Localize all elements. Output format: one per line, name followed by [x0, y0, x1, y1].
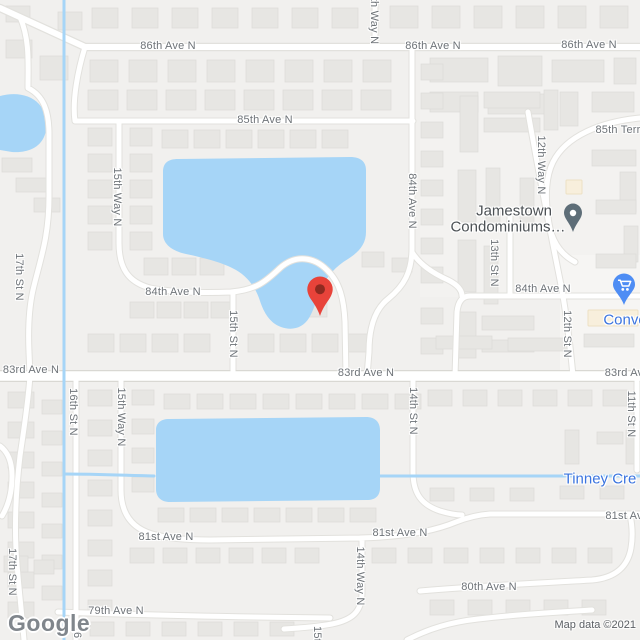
building	[130, 154, 152, 172]
street-label: 14th St N	[407, 387, 419, 435]
building	[163, 548, 187, 563]
building	[197, 394, 223, 409]
street-label: 14th Way N	[354, 546, 366, 605]
building	[560, 486, 584, 499]
street-label: 83rd Av	[605, 367, 640, 379]
building	[132, 390, 154, 405]
building	[42, 586, 62, 600]
building	[460, 96, 478, 152]
building	[42, 524, 62, 538]
building	[263, 394, 289, 409]
shopping-cart-store-pin-icon[interactable]	[610, 273, 638, 306]
street-label: 84th Ave N	[145, 286, 201, 298]
building	[458, 312, 476, 358]
poi-label-jamestown[interactable]: Jamestown	[476, 203, 552, 220]
building	[184, 334, 210, 352]
building	[207, 60, 235, 82]
building	[484, 92, 540, 108]
building	[286, 508, 312, 522]
poi-label-convenience-store[interactable]: Conve	[603, 312, 640, 329]
destination-pin-icon[interactable]	[304, 276, 336, 318]
building	[246, 60, 274, 82]
building	[88, 570, 112, 586]
building	[421, 93, 443, 109]
building	[132, 448, 154, 463]
street-label: 86th Ave N	[561, 39, 617, 51]
building	[408, 548, 432, 563]
building	[324, 60, 352, 82]
building	[614, 58, 636, 84]
building	[458, 240, 476, 292]
building	[596, 254, 636, 268]
building	[285, 60, 313, 82]
building	[329, 394, 355, 409]
street-label: 84th Ave N	[406, 173, 418, 229]
building	[130, 180, 152, 198]
building	[252, 8, 278, 28]
building	[184, 302, 208, 318]
street-label: 81st Av	[605, 510, 640, 522]
building	[421, 122, 443, 138]
building	[596, 200, 636, 214]
google-logo[interactable]: Google	[8, 610, 90, 637]
building	[444, 548, 468, 563]
building	[436, 336, 492, 349]
building	[132, 419, 154, 434]
street-label: 80th Ave N	[461, 581, 517, 593]
street-label: 86th Ave N	[140, 40, 196, 52]
street-label: 15t	[311, 626, 323, 640]
building	[120, 334, 146, 352]
building	[229, 548, 253, 563]
building	[262, 548, 286, 563]
building	[516, 6, 544, 28]
building	[90, 622, 114, 636]
building	[458, 170, 476, 222]
building	[88, 510, 112, 526]
building	[88, 480, 112, 496]
building	[152, 334, 178, 352]
building	[258, 130, 284, 148]
building	[226, 130, 252, 148]
building	[421, 238, 443, 254]
street-label: 12th St N	[561, 310, 573, 358]
building	[205, 90, 235, 110]
building	[421, 64, 443, 80]
building	[196, 548, 220, 563]
street-label: 81st Ave N	[373, 527, 428, 539]
building	[244, 90, 274, 110]
building	[212, 8, 238, 28]
building	[312, 334, 338, 352]
street-label: 17th St N	[6, 548, 18, 596]
building	[421, 180, 443, 196]
building	[234, 622, 258, 636]
building	[2, 158, 32, 172]
building	[34, 560, 54, 574]
building	[8, 512, 34, 528]
building	[42, 431, 62, 445]
building	[421, 209, 443, 225]
street-label: 85th Terr	[595, 124, 640, 136]
building	[552, 60, 604, 82]
building	[164, 394, 190, 409]
building	[88, 390, 112, 406]
map-base-tiles	[0, 0, 640, 640]
building	[222, 508, 248, 522]
building	[157, 302, 181, 318]
building	[470, 488, 494, 501]
building	[127, 90, 157, 110]
building	[92, 8, 118, 28]
building	[42, 493, 62, 507]
building	[468, 600, 492, 615]
building	[296, 394, 322, 409]
building	[350, 508, 376, 522]
building	[88, 206, 112, 224]
building	[552, 548, 576, 563]
building	[230, 394, 256, 409]
building	[332, 8, 358, 28]
street-label: 12th Way N	[535, 135, 547, 194]
map-canvas[interactable]: 86th Ave N86th Ave N86th Ave N85th Ave N…	[0, 0, 640, 640]
building	[318, 508, 344, 522]
street-label: 11th St N	[625, 391, 637, 438]
building	[88, 180, 112, 198]
building	[510, 488, 534, 501]
building	[162, 130, 188, 148]
building	[130, 548, 154, 563]
street-label: 16th St N	[67, 388, 79, 436]
building	[130, 206, 152, 224]
street-label: 83rd Ave N	[3, 364, 59, 376]
building	[88, 334, 114, 352]
building	[130, 302, 154, 318]
building	[482, 316, 534, 330]
building	[88, 128, 112, 146]
street-label: 17th St N	[13, 253, 25, 301]
building	[516, 548, 540, 563]
building	[283, 90, 313, 110]
building	[372, 548, 396, 563]
building	[194, 130, 220, 148]
building	[88, 232, 112, 250]
building	[565, 430, 579, 464]
street-label: 79th Ave N	[88, 605, 144, 617]
building	[166, 90, 196, 110]
building	[432, 6, 460, 28]
building	[172, 258, 196, 275]
building	[428, 390, 452, 406]
building	[88, 420, 112, 436]
street-label: 15th Way N	[115, 387, 127, 446]
building	[132, 477, 154, 492]
building	[498, 390, 522, 406]
building	[592, 92, 634, 112]
street-label: 13th St N	[488, 239, 500, 287]
building	[162, 622, 186, 636]
building	[144, 258, 168, 275]
building	[190, 508, 216, 522]
building	[600, 6, 628, 28]
building	[322, 90, 352, 110]
building	[592, 150, 636, 166]
building	[390, 6, 418, 28]
building	[361, 90, 391, 110]
street-label: 84th Ave N	[515, 283, 571, 295]
map-data-attribution: Map data ©2021	[555, 619, 637, 631]
building	[362, 252, 384, 267]
street-label: 15th St N	[227, 310, 239, 358]
building	[533, 390, 557, 406]
building	[322, 130, 348, 148]
building	[430, 488, 454, 501]
building	[560, 92, 578, 126]
street-label: 83rd Ave N	[338, 367, 394, 379]
building	[248, 334, 274, 352]
building	[254, 508, 280, 522]
street-label: 15th Way N	[111, 167, 123, 226]
street-label: th Way N	[368, 0, 380, 44]
building	[172, 8, 198, 28]
building	[129, 60, 157, 82]
building	[603, 390, 627, 406]
building	[88, 90, 118, 110]
building	[363, 60, 391, 82]
building	[474, 6, 502, 28]
building	[558, 6, 586, 28]
building	[88, 450, 112, 466]
building	[430, 600, 454, 615]
building	[132, 8, 158, 28]
building	[290, 130, 316, 148]
building	[600, 486, 624, 499]
building	[362, 394, 388, 409]
building	[168, 60, 196, 82]
building	[597, 432, 623, 444]
building	[198, 622, 222, 636]
street-label: 85th Ave N	[237, 114, 293, 126]
building	[126, 622, 150, 636]
building	[421, 151, 443, 167]
building	[498, 56, 542, 86]
building	[130, 128, 152, 146]
building	[421, 308, 443, 324]
building	[588, 548, 612, 563]
building	[42, 462, 62, 476]
street-label: 81st Ave N	[139, 531, 194, 543]
building	[90, 60, 118, 82]
water-label-tinney-creek: Tinney Cre	[564, 471, 637, 488]
lake-south	[156, 417, 380, 502]
building	[584, 334, 634, 347]
building	[130, 232, 152, 250]
building	[463, 390, 487, 406]
building	[16, 178, 46, 192]
street-label: 86th Ave N	[405, 40, 461, 52]
building	[58, 12, 82, 30]
building	[544, 90, 558, 130]
building	[480, 548, 504, 563]
building	[158, 508, 184, 522]
building	[568, 390, 592, 406]
poi-building	[566, 180, 582, 194]
building	[88, 540, 112, 556]
building	[42, 400, 62, 414]
building	[295, 548, 319, 563]
jamestown-poi-pin-icon[interactable]	[561, 203, 585, 233]
building	[280, 334, 306, 352]
poi-label-jamestown[interactable]: Condominiums…	[450, 219, 565, 236]
building	[88, 154, 112, 172]
building	[292, 8, 318, 28]
